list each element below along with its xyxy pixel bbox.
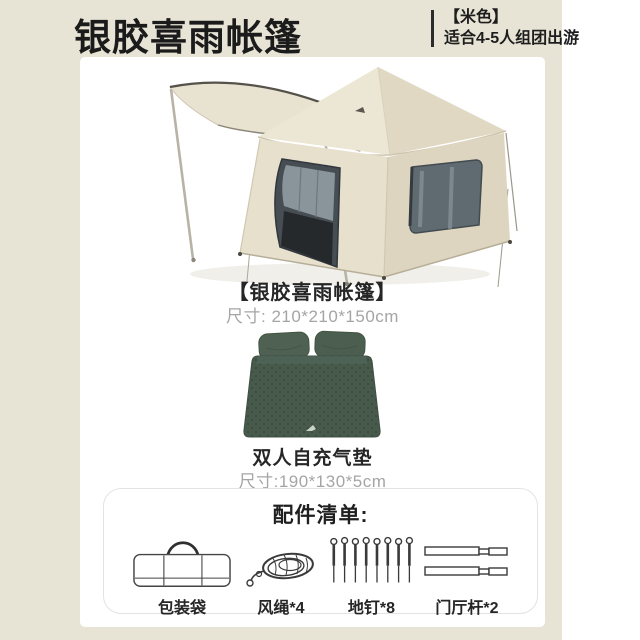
ground-stake-icon xyxy=(324,531,419,589)
wind-rope-icon xyxy=(242,531,320,589)
accessory-item-stakes: 地钉*8 xyxy=(324,531,419,618)
variant-block: 【米色】 适合4-5人组团出游 xyxy=(444,7,579,49)
accessory-label: 包装袋 xyxy=(158,594,206,618)
tent-name: 【银胶喜雨帐篷】 xyxy=(80,276,545,305)
page-title: 银胶喜雨帐篷 xyxy=(74,7,302,61)
accessory-label: 门厅杆*2 xyxy=(435,594,498,618)
accessory-item-poles: 门厅杆*2 xyxy=(423,531,511,618)
canopy-pole-icon xyxy=(423,531,511,589)
accessory-item-rope: 风绳*4 xyxy=(242,531,320,618)
storage-bag-icon xyxy=(126,531,238,589)
accessories-title: 配件清单: xyxy=(104,489,537,529)
tent-size: 尺寸: 210*210*150cm xyxy=(80,302,545,327)
mattress-photo xyxy=(242,330,382,442)
variant-label: 【米色】 xyxy=(444,7,579,28)
product-infographic: 银胶喜雨帐篷 【米色】 适合4-5人组团出游 xyxy=(0,0,640,640)
variant-subtitle: 适合4-5人组团出游 xyxy=(444,28,579,49)
accessories-row: 包装袋 xyxy=(104,529,537,618)
tent-photo xyxy=(100,61,520,297)
accessory-item-bag: 包装袋 xyxy=(126,531,238,618)
header-divider xyxy=(431,10,434,47)
mattress-name: 双人自充气垫 xyxy=(80,443,545,470)
accessory-label: 地钉*8 xyxy=(348,594,395,618)
product-card: 银胶喜雨帐篷 【米色】 适合4-5人组团出游 xyxy=(0,0,562,640)
accessories-box: 配件清单: 包装袋 xyxy=(103,488,538,614)
accessory-label: 风绳*4 xyxy=(257,594,304,618)
content-panel: 【银胶喜雨帐篷】 尺寸: 210*210*150cm xyxy=(80,57,545,627)
